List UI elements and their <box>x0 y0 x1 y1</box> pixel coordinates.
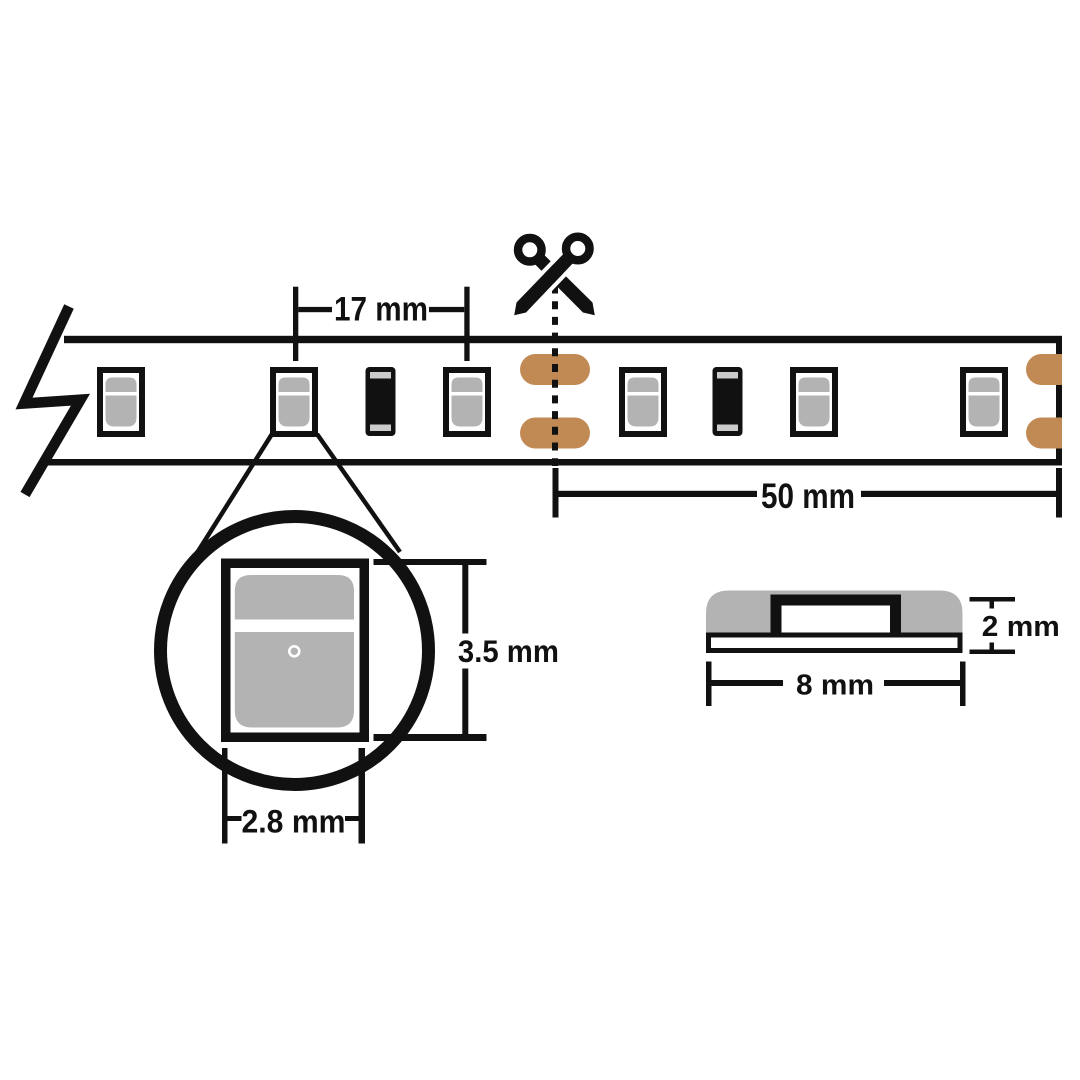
svg-text:8 mm: 8 mm <box>796 670 874 702</box>
svg-text:2.8 mm: 2.8 mm <box>242 804 346 840</box>
svg-text:17 mm: 17 mm <box>334 291 428 329</box>
svg-text:3.5 mm: 3.5 mm <box>458 633 559 669</box>
svg-text:50 mm: 50 mm <box>761 477 855 516</box>
svg-text:2 mm: 2 mm <box>982 611 1060 643</box>
